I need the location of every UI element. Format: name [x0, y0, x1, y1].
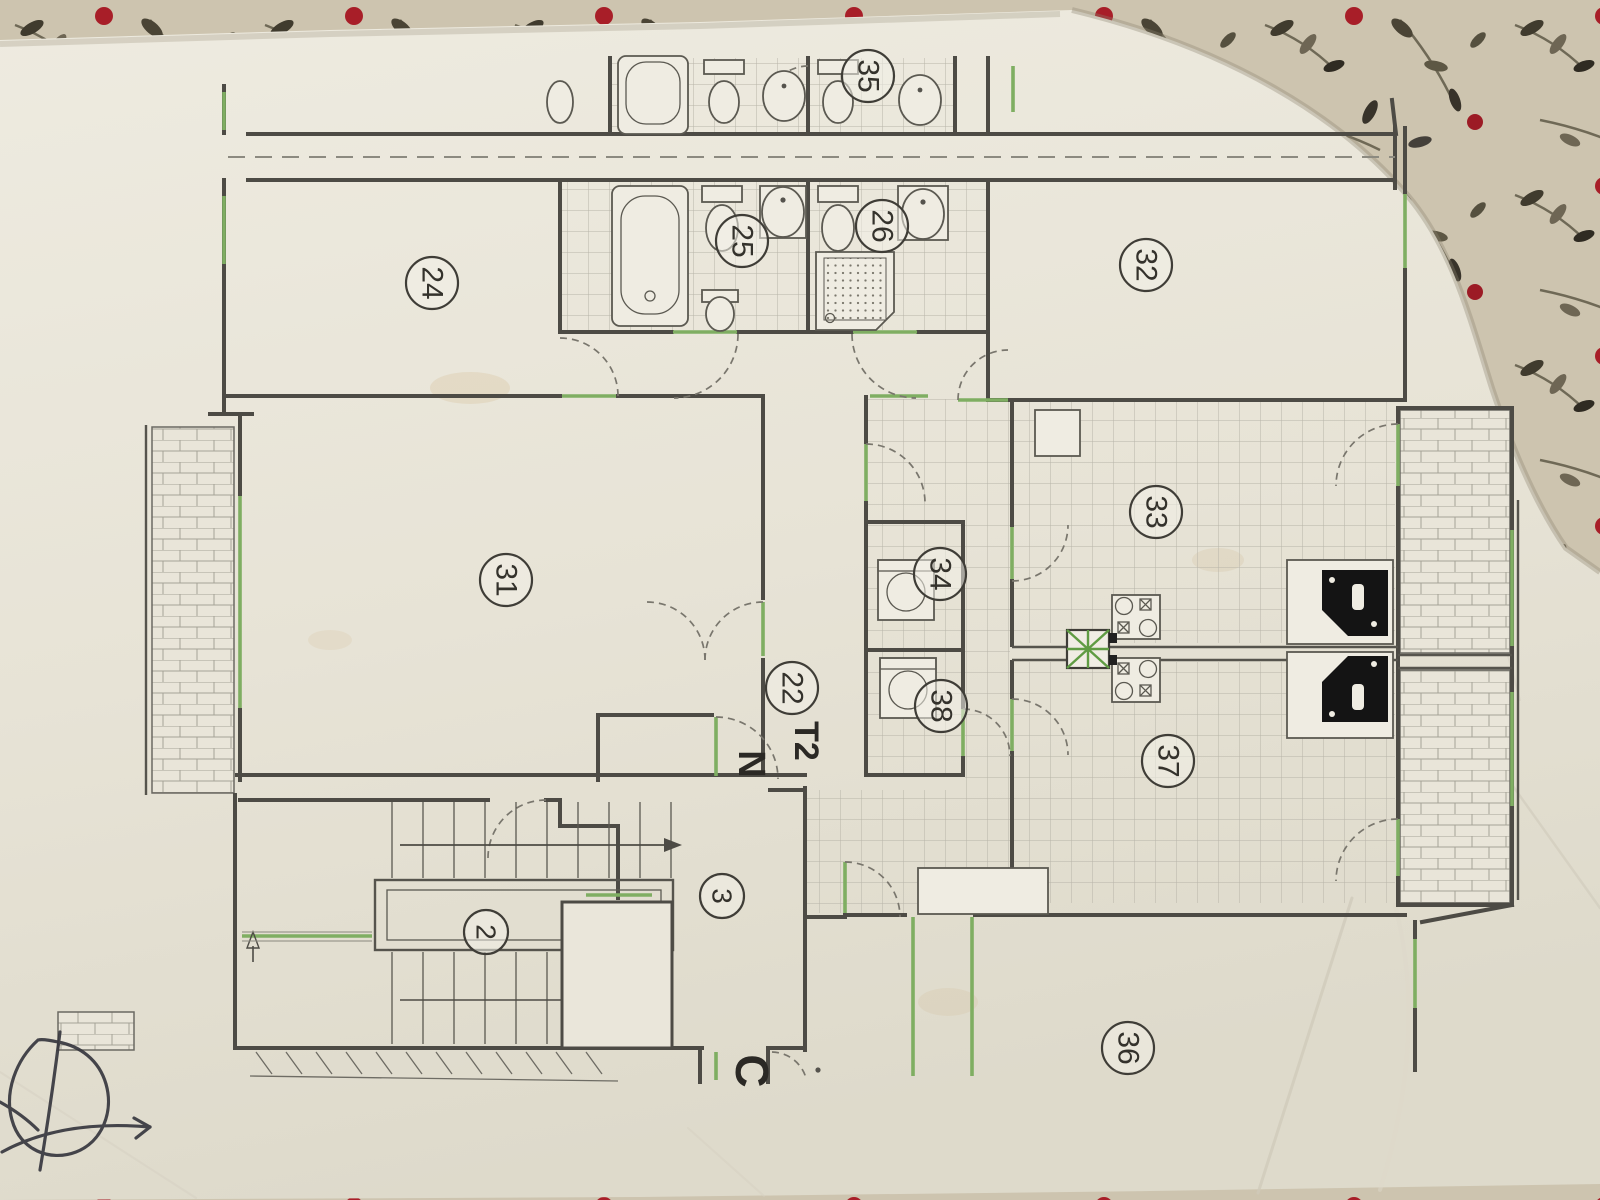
room-label-24: 24 — [406, 257, 458, 309]
room-label-22: 22 — [766, 662, 818, 714]
room-label-33: 33 — [1130, 486, 1182, 538]
vent-shaft-icon — [1067, 630, 1117, 668]
svg-text:36: 36 — [1112, 1031, 1145, 1064]
cabinet — [1035, 410, 1080, 456]
svg-text:38: 38 — [925, 689, 958, 722]
room-label-36: 36 — [1102, 1022, 1154, 1074]
shower-icon — [816, 252, 894, 330]
svg-text:24: 24 — [416, 266, 449, 299]
washbasin-icon — [760, 186, 806, 238]
room-label-31: 31 — [480, 554, 532, 606]
svg-text:3: 3 — [707, 888, 738, 904]
stove-icon — [1112, 658, 1160, 702]
elevator-icon — [562, 902, 672, 1048]
svg-text:34: 34 — [924, 557, 957, 590]
unit-letter-T2: T2 — [787, 721, 825, 761]
svg-text:32: 32 — [1130, 248, 1163, 281]
room-label-38: 38 — [915, 680, 967, 732]
room-label-3: 3 — [700, 874, 744, 918]
svg-text:33: 33 — [1140, 495, 1173, 528]
bathtub-icon — [612, 186, 688, 326]
room-label-2: 2 — [464, 910, 508, 954]
svg-text:2: 2 — [471, 924, 502, 940]
stove-icon — [1112, 595, 1160, 639]
room-label-35: 35 — [842, 50, 894, 102]
room-label-25: 25 — [716, 215, 768, 267]
unit-letter-C: C — [726, 1054, 778, 1087]
kitchen-sink-icon — [1287, 652, 1393, 738]
svg-text:35: 35 — [852, 59, 885, 92]
svg-text:31: 31 — [490, 563, 523, 596]
svg-text:25: 25 — [726, 224, 759, 257]
floor-plan-photo: 35242526323122343338372336 T2NC — [0, 0, 1600, 1200]
room-label-26: 26 — [856, 200, 908, 252]
bathtub-icon — [618, 56, 688, 134]
washbasin-icon — [899, 75, 941, 125]
washbasin-icon — [547, 81, 573, 123]
photo-of-floor-plan: 35242526323122343338372336 T2NC — [0, 0, 1600, 1200]
room-label-34: 34 — [914, 548, 966, 600]
room-label-32: 32 — [1120, 239, 1172, 291]
closet — [918, 868, 1048, 914]
unit-letter-N: N — [730, 750, 772, 777]
washbasin-icon — [763, 71, 805, 121]
svg-text:22: 22 — [776, 671, 809, 704]
room-label-37: 37 — [1142, 735, 1194, 787]
svg-text:26: 26 — [866, 209, 899, 242]
toilet-icon — [818, 186, 858, 251]
kitchen-sink-icon — [1287, 560, 1393, 644]
svg-text:37: 37 — [1152, 744, 1185, 777]
